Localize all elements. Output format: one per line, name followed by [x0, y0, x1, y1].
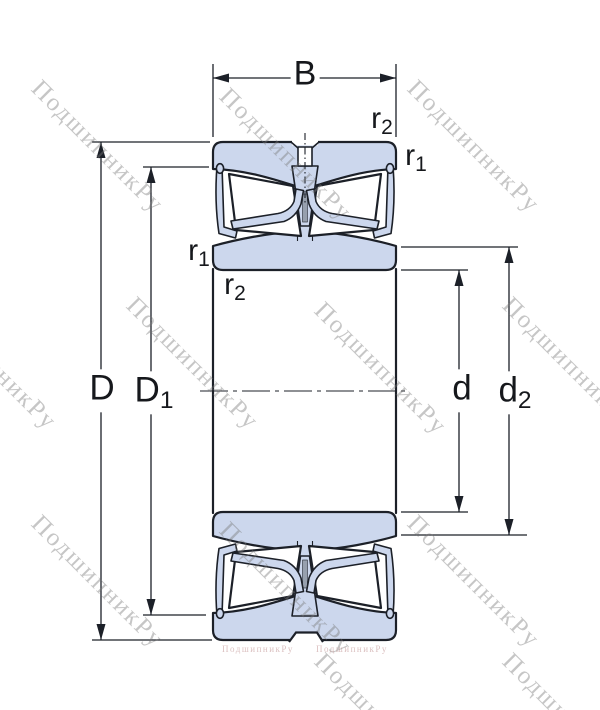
dim-label-r2-left: r2 — [224, 270, 246, 304]
dim-label-r1-left: r1 — [188, 236, 210, 270]
bearing-diagram-page: ПодшипникРу ПодшипникРу ПодшипникРу Подш… — [0, 0, 600, 710]
dim-label-r2-top: r2 — [371, 104, 393, 138]
dim-label-d: d — [449, 369, 474, 412]
dim-label-B: B — [291, 55, 320, 96]
dim-label-d2: d2 — [495, 371, 534, 414]
bearing-bottom-section — [213, 512, 396, 640]
bottom-notch — [289, 633, 323, 643]
dim-label-D1: D1 — [132, 371, 177, 414]
dim-label-D: D — [86, 369, 117, 412]
bearing-drawing — [0, 0, 600, 710]
dim-label-r1-right: r1 — [405, 141, 427, 175]
